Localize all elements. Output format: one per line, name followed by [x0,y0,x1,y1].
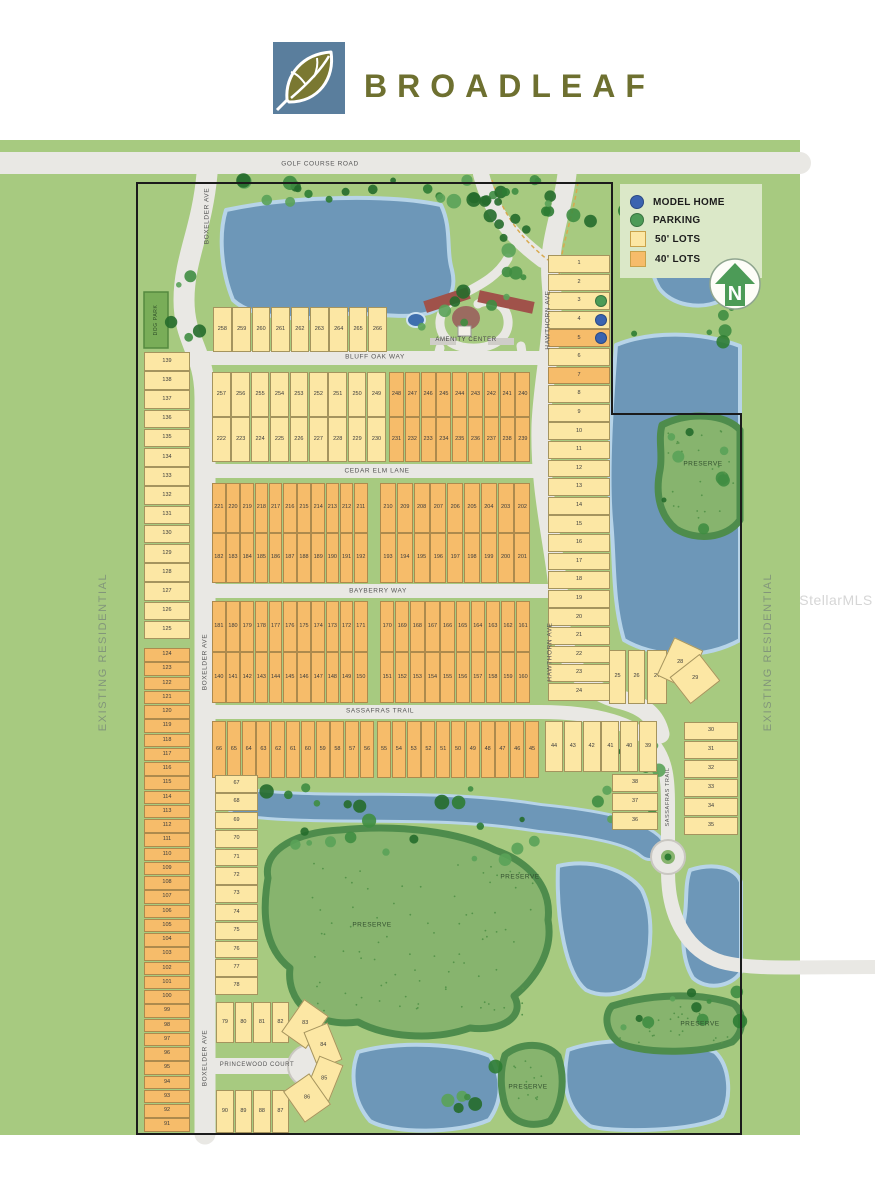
north-indicator: N [707,256,763,317]
hawthorn-ave-label-top: HAWTHORN AVE [545,290,552,349]
legend-label: 40' LOTS [655,254,700,265]
legend-label: PARKING [653,215,700,226]
50-lots-swatch [630,231,646,247]
princewood-court-label: PRINCEWOOD COURT [220,1062,295,1068]
boxelder-ave-label-top: BOXELDER AVE [204,188,211,245]
boxelder-ave-label-mid: BOXELDER AVE [202,634,209,691]
existing-residential-left: EXISTING RESIDENTIAL [97,573,109,732]
amenity-center-label: AMENITY CENTER [435,337,496,343]
site-plan-page: { "brand": {"name": "BROADLEAF"}, "legen… [0,0,875,1200]
parking-swatch [630,213,644,227]
existing-residential-right: EXISTING RESIDENTIAL [762,573,774,732]
labels-layer: GOLF COURSE ROAD BOXELDER AVE BOXELDER A… [0,0,875,1200]
sassafras-trail-label-v: SASSAFRAS TRAIL [665,767,671,826]
preserve-label-se: PRESERVE [680,1021,719,1028]
boxelder-ave-label-bottom: BOXELDER AVE [202,1030,209,1087]
legend-row-0: MODEL HOME [630,195,752,209]
watermark: StellarMLS [799,592,872,608]
north-letter: N [728,283,742,305]
model-home-swatch [630,195,644,209]
bayberry-way-label: BAYBERRY WAY [349,588,407,595]
cedar-elm-lane-label: CEDAR ELM LANE [344,468,409,475]
legend-row-2: 50' LOTS [630,231,752,247]
dog-park-label: DOG PARK [153,305,159,336]
sassafras-trail-label-h: SASSAFRAS TRAIL [346,708,414,715]
north-arrow-icon: N [707,256,763,312]
legend-label: 50' LOTS [655,234,700,245]
golf-course-road-label: GOLF COURSE ROAD [281,161,359,168]
preserve-label-central: PRESERVE [352,922,391,929]
preserve-label-central-2: PRESERVE [500,874,539,881]
hawthorn-ave-label-bottom: HAWTHORN AVE [547,622,554,681]
legend-row-1: PARKING [630,213,752,227]
legend-label: MODEL HOME [653,197,725,208]
bluff-oak-way-label: BLUFF OAK WAY [345,354,405,361]
preserve-label-bottom: PRESERVE [508,1084,547,1091]
40-lots-swatch [630,251,646,267]
preserve-label-east: PRESERVE [683,461,722,468]
